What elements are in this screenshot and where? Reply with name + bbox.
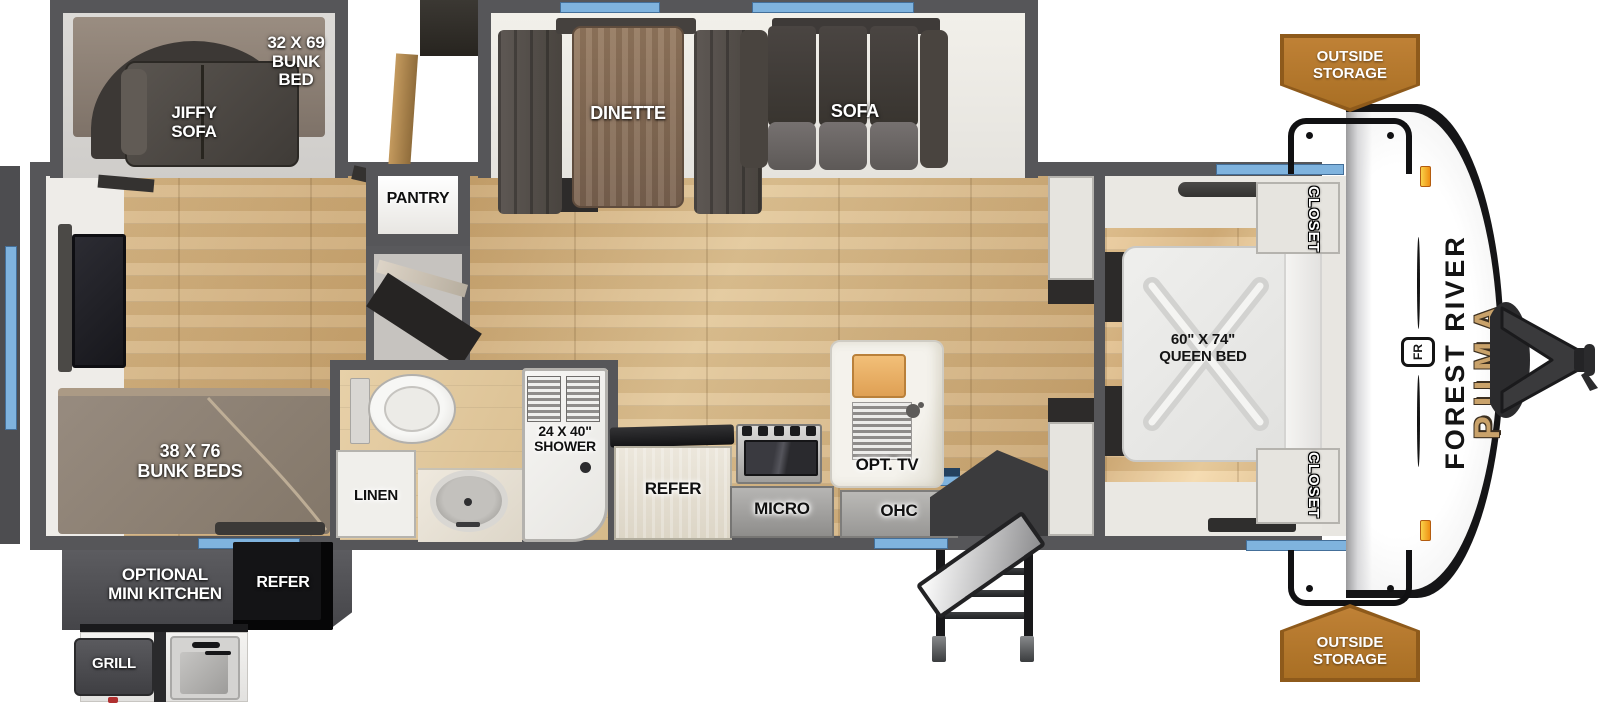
bunk-beds-label: 38 X 76 BUNK BEDS [90,442,290,482]
stove-knob-1 [742,426,752,436]
marker-light-bottom [1420,520,1431,541]
entry-bottom-window [874,538,948,549]
island-faucet [906,404,920,418]
refer-counter [610,424,734,447]
grill-label: GRILL [76,656,152,673]
rack-bolt-2 [1387,132,1394,139]
sofa-label: SOFA [800,102,910,122]
bath-sink-drain [464,498,472,506]
wardrobe-top [420,0,482,56]
rack-bolt-4 [1387,585,1394,592]
micro-label: MICRO [732,500,832,519]
stove-knob-4 [790,426,800,436]
storage-rack-bottom [1288,550,1412,606]
sink-grate [852,402,912,460]
brand-swoosh-right [1417,237,1420,329]
step-foot-right [1020,636,1034,662]
forest-river-badge-icon: FR [1401,337,1435,367]
stove-knob-3 [774,426,784,436]
sofa-armrest-left [740,30,768,168]
bedroom-wall [1094,176,1105,536]
hitch [1490,292,1600,428]
mini-kitchen-counter-edge [80,624,248,632]
tv [72,234,126,368]
outside-storage-banner-bottom: OUTSIDE STORAGE [1280,604,1420,682]
outside-sink-faucet [192,642,220,648]
refer-label: REFER [616,480,730,499]
marker-light-top [1420,166,1431,187]
queen-bed-label: 60" X 74" QUEEN BED [1128,332,1278,365]
slide-window-2 [752,2,914,13]
linen-label: LINEN [338,488,414,505]
slide-window-1 [560,2,660,13]
brand-badge-row: FR [1401,237,1435,467]
tv-mount [58,224,72,372]
outside-sink-basin [180,652,228,694]
jiffy-sofa-armrest [121,69,147,155]
queen-bed-pillows [1284,244,1322,464]
wardrobe-panel [388,53,418,172]
galley-end-cabinet-top [1048,176,1094,280]
closet-cabinet-bottom [1256,448,1340,524]
step-3 [945,612,1024,619]
jiffy-sofa-label: JIFFY SOFA [146,104,242,141]
sofa-armrest-right [920,30,948,168]
sofa-seat-3 [870,122,918,170]
closet-cabinet-top [1256,182,1340,254]
galley-end-counter-bottom [1048,398,1094,422]
shower-curtain-coil-1 [527,376,561,422]
shower-curtain-coil-2 [566,376,600,422]
step-rail-right [1024,550,1033,640]
bunk-beds-pillow [215,522,325,535]
dinette-label: DINETTE [560,104,696,124]
pantry-label: PANTRY [368,190,468,208]
cutting-board [852,354,906,398]
outside-storage-label-bottom: OUTSIDE STORAGE [1313,634,1387,669]
closet-label-bottom: CLOSET [1305,452,1322,522]
rack-bolt-3 [1306,585,1313,592]
front-cap-edge [1346,112,1372,590]
galley-end-cabinet-bottom [1048,422,1094,536]
toilet-bowl [384,386,440,432]
shower-label: 24 X 40" SHOWER [520,424,610,455]
shower-drain [580,462,591,473]
outside-storage-banner-bottom-face: OUTSIDE STORAGE [1284,608,1416,678]
galley-end-counter-top [1048,280,1094,304]
toilet-tank [350,378,370,444]
outside-storage-banner-top-face: OUTSIDE STORAGE [1284,38,1416,108]
bath-faucet [456,522,480,527]
mini-kitchen-label: OPTIONAL MINI KITCHEN [70,566,260,603]
stove-knob-2 [758,426,768,436]
storage-rack-top [1288,118,1412,174]
outside-storage-banner-top: OUTSIDE STORAGE [1280,34,1420,112]
sofa-seat-2 [819,122,867,170]
oven-window [744,440,818,476]
mini-kitchen-divider [154,632,166,702]
rear-wall [30,162,46,550]
brand-swoosh-left [1417,375,1420,467]
rear-bunk-label: 32 X 69 BUNK BED [238,34,354,90]
dinette-bench-left [498,30,562,214]
opt-tv-label: OPT. TV [834,456,940,475]
mini-kitchen-refer-label: REFER [235,574,331,592]
sofa-seat-1 [768,122,816,170]
step-foot-left [932,636,946,662]
rack-bolt-1 [1306,132,1313,139]
grill-knob [108,697,118,703]
hall-closet [366,246,470,374]
floorplan: 32 X 69 BUNK BED JIFFY SOFA PANTRY DINET… [0,0,1600,705]
closet-label-top: CLOSET [1305,186,1322,256]
outside-storage-label-top: OUTSIDE STORAGE [1313,48,1387,83]
rear-window [5,246,17,430]
stove-knob-5 [806,426,816,436]
